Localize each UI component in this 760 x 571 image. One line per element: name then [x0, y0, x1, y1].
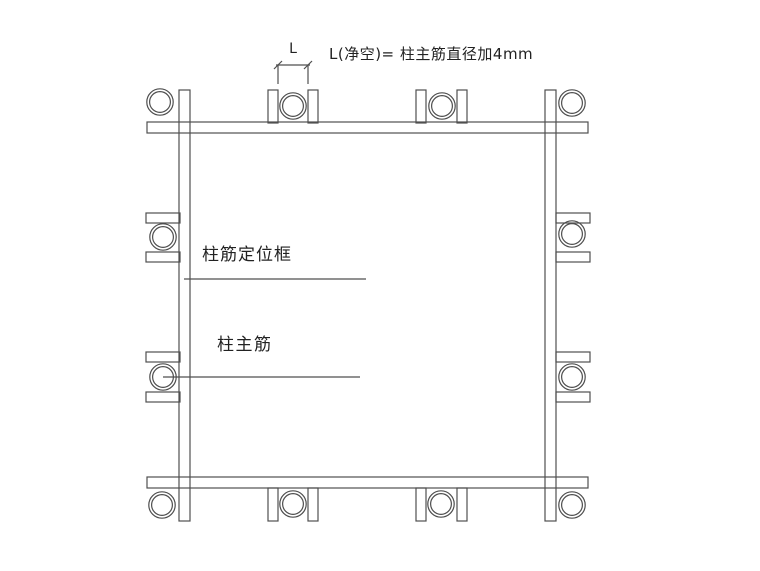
rebar-corner-top-right-inner	[562, 93, 583, 114]
tab-bottom-1-left	[268, 488, 278, 521]
clearance-formula-text: L(净空)= 柱主筋直径加4mm	[329, 45, 533, 63]
rebar-left-1-outer	[150, 224, 176, 250]
rebar-top-1-outer	[280, 93, 306, 119]
tab-bottom-1-right	[308, 488, 318, 521]
rebar-right-1-inner	[562, 224, 583, 245]
rebar-bottom-1-inner	[283, 494, 304, 515]
frame-strip-bottom	[147, 477, 588, 488]
tab-right-1-lower	[556, 252, 590, 262]
rebar-right-2-inner	[562, 367, 583, 388]
tab-right-2-lower	[556, 392, 590, 402]
tab-top-1-right	[308, 90, 318, 123]
rebar-corner-top-right-outer	[559, 90, 585, 116]
tab-top-2-right	[457, 90, 467, 123]
rebar-corner-top-left-outer	[147, 89, 173, 115]
rebar-bottom-2-outer	[428, 491, 454, 517]
rebar-corner-bottom-left-inner	[152, 495, 173, 516]
frame-strip-top	[147, 122, 588, 133]
tab-right-2-upper	[556, 352, 590, 362]
tab-bottom-2-right	[457, 488, 467, 521]
drawing-canvas: L L(净空)= 柱主筋直径加4mm 柱筋定位框 柱主筋	[0, 0, 760, 571]
rebar-corner-top-left-inner	[150, 92, 171, 113]
positioning-frame-label: 柱筋定位框	[202, 245, 292, 265]
rebar-top-2-outer	[429, 93, 455, 119]
tab-left-1-lower	[146, 252, 180, 262]
rebar-right-1-outer	[559, 221, 585, 247]
rebar-corner-bottom-right-outer	[559, 492, 585, 518]
rebar-top-1-inner	[283, 96, 304, 117]
tab-top-1-left	[268, 90, 278, 123]
frame-strip-right	[545, 90, 556, 521]
rebar-right-2-outer	[559, 364, 585, 390]
tab-left-2-lower	[146, 392, 180, 402]
rebar-corner-bottom-left-outer	[149, 492, 175, 518]
tab-top-2-left	[416, 90, 426, 123]
tab-bottom-2-left	[416, 488, 426, 521]
rebar-left-1-inner	[153, 227, 174, 248]
tab-left-2-upper	[146, 352, 180, 362]
rebar-corner-bottom-right-inner	[562, 495, 583, 516]
tab-left-1-upper	[146, 213, 180, 223]
dimension-l-label: L	[281, 41, 305, 58]
rebar-top-2-inner	[432, 96, 453, 117]
frame-strip-left	[179, 90, 190, 521]
rebar-bottom-2-inner	[431, 494, 452, 515]
tab-right-1-upper	[556, 213, 590, 223]
column-main-bar-label: 柱主筋	[217, 335, 273, 355]
rebar-bottom-1-outer	[280, 491, 306, 517]
frame-drawing	[0, 0, 760, 571]
